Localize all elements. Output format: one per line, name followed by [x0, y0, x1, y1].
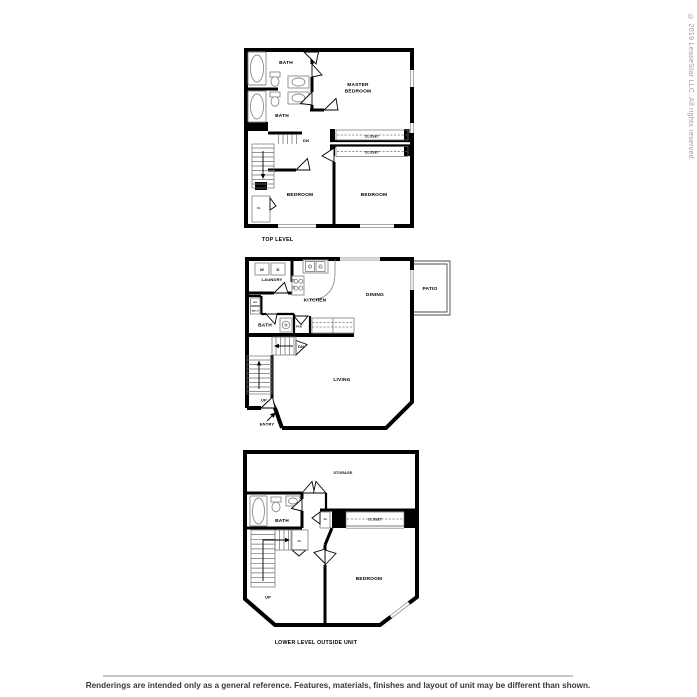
- windows: [340, 257, 414, 290]
- label-up: UP: [265, 595, 271, 600]
- label-pan: PAN: [296, 325, 302, 329]
- label-storage: STORAGE: [333, 471, 353, 475]
- label-mech: MECH: [252, 310, 259, 312]
- label-bath: BATH: [275, 518, 289, 524]
- label-closet-2: CLOSET: [365, 151, 379, 155]
- label-dryer: D: [276, 267, 279, 272]
- label-cl: CL: [257, 206, 261, 210]
- label-dn: DN: [298, 344, 304, 349]
- middle-level-floorplan: W D LAUNDRY KITCHEN DINING PATIO WH MECH…: [244, 256, 456, 434]
- stairs: [251, 530, 308, 587]
- up-direction-arrow-icon: [257, 361, 261, 366]
- lower-level-caption: LOWER LEVEL OUTSIDE UNIT: [275, 640, 358, 646]
- label-cl-1: CL: [324, 517, 328, 521]
- stairs: [252, 134, 297, 188]
- label-bath: BATH: [258, 323, 272, 329]
- down-direction-arrow-icon: [274, 344, 279, 348]
- toilet: [271, 497, 281, 502]
- top-level-floorplan: BATH BATH MASTER BEDROOM DN CLOSET CLOSE…: [244, 48, 416, 246]
- label-bedroom: BEDROOM: [356, 576, 382, 582]
- floorplan-page: BATH BATH MASTER BEDROOM DN CLOSET CLOSE…: [0, 0, 697, 697]
- up-direction-arrow-icon: [285, 538, 290, 542]
- label-living: LIVING: [333, 377, 350, 383]
- label-bath-1: BATH: [279, 60, 293, 66]
- label-master-bedroom: MASTER: [347, 82, 369, 88]
- disclaimer-text: Renderings are intended only as a genera…: [38, 681, 638, 690]
- label-patio: PATIO: [423, 286, 438, 292]
- label-bedroom-1: BEDROOM: [287, 192, 313, 198]
- closets: [252, 130, 408, 222]
- label-up: UP: [261, 398, 267, 403]
- top-level-caption: TOP LEVEL: [262, 237, 294, 243]
- windows: [390, 602, 410, 618]
- label-dn: DN: [303, 138, 309, 143]
- room-labels: BATH BATH MASTER BEDROOM DN CLOSET CLOSE…: [257, 60, 387, 243]
- label-closet: CLOSET: [368, 518, 382, 522]
- label-laundry: LAUNDRY: [262, 277, 283, 282]
- counter-cabinet: [312, 318, 354, 333]
- copyright-text: © 2019 LeaseStar LLC. All rights reserve…: [687, 14, 694, 161]
- label-bath-2: BATH: [275, 113, 289, 119]
- footer-divider: [103, 675, 573, 677]
- label-kitchen: KITCHEN: [304, 298, 327, 304]
- label-washer: W: [260, 267, 264, 272]
- label-master-bedroom: BEDROOM: [345, 89, 371, 95]
- label-closet-1: CLOSET: [365, 135, 379, 139]
- label-bedroom-2: BEDROOM: [361, 192, 387, 198]
- label-dining: DINING: [366, 292, 384, 298]
- label-cl-2: CL: [298, 539, 302, 543]
- down-direction-arrow-icon: [261, 174, 265, 179]
- bath-fixtures: [280, 318, 292, 332]
- lower-level-floorplan: STORAGE BATH CL CLOSET CL BEDROOM UP LOW…: [242, 448, 422, 648]
- entry-marker: [267, 413, 276, 422]
- label-wh: WH: [253, 302, 257, 304]
- label-entry: ENTRY: [260, 422, 275, 427]
- kitchen-fixtures: [292, 259, 335, 300]
- stove: [292, 276, 304, 295]
